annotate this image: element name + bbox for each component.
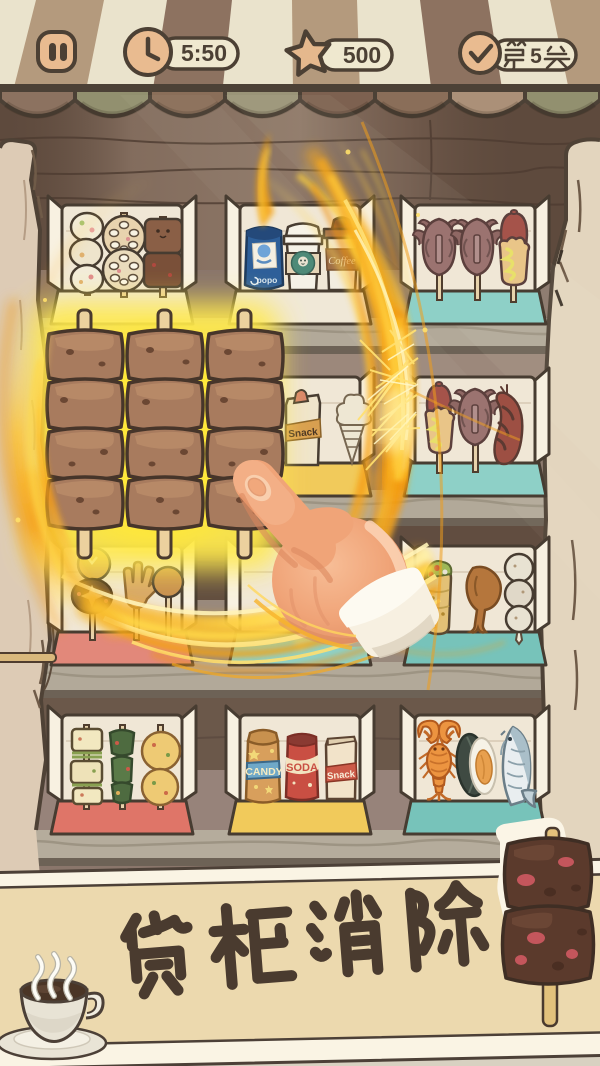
svg-text:500: 500	[343, 42, 381, 68]
svg-text:CANDY: CANDY	[245, 766, 282, 778]
svg-text:popo: popo	[257, 275, 278, 285]
svg-text:5: 5	[530, 45, 542, 68]
svg-text:SODA: SODA	[286, 762, 318, 774]
svg-text:5:50: 5:50	[181, 40, 227, 66]
